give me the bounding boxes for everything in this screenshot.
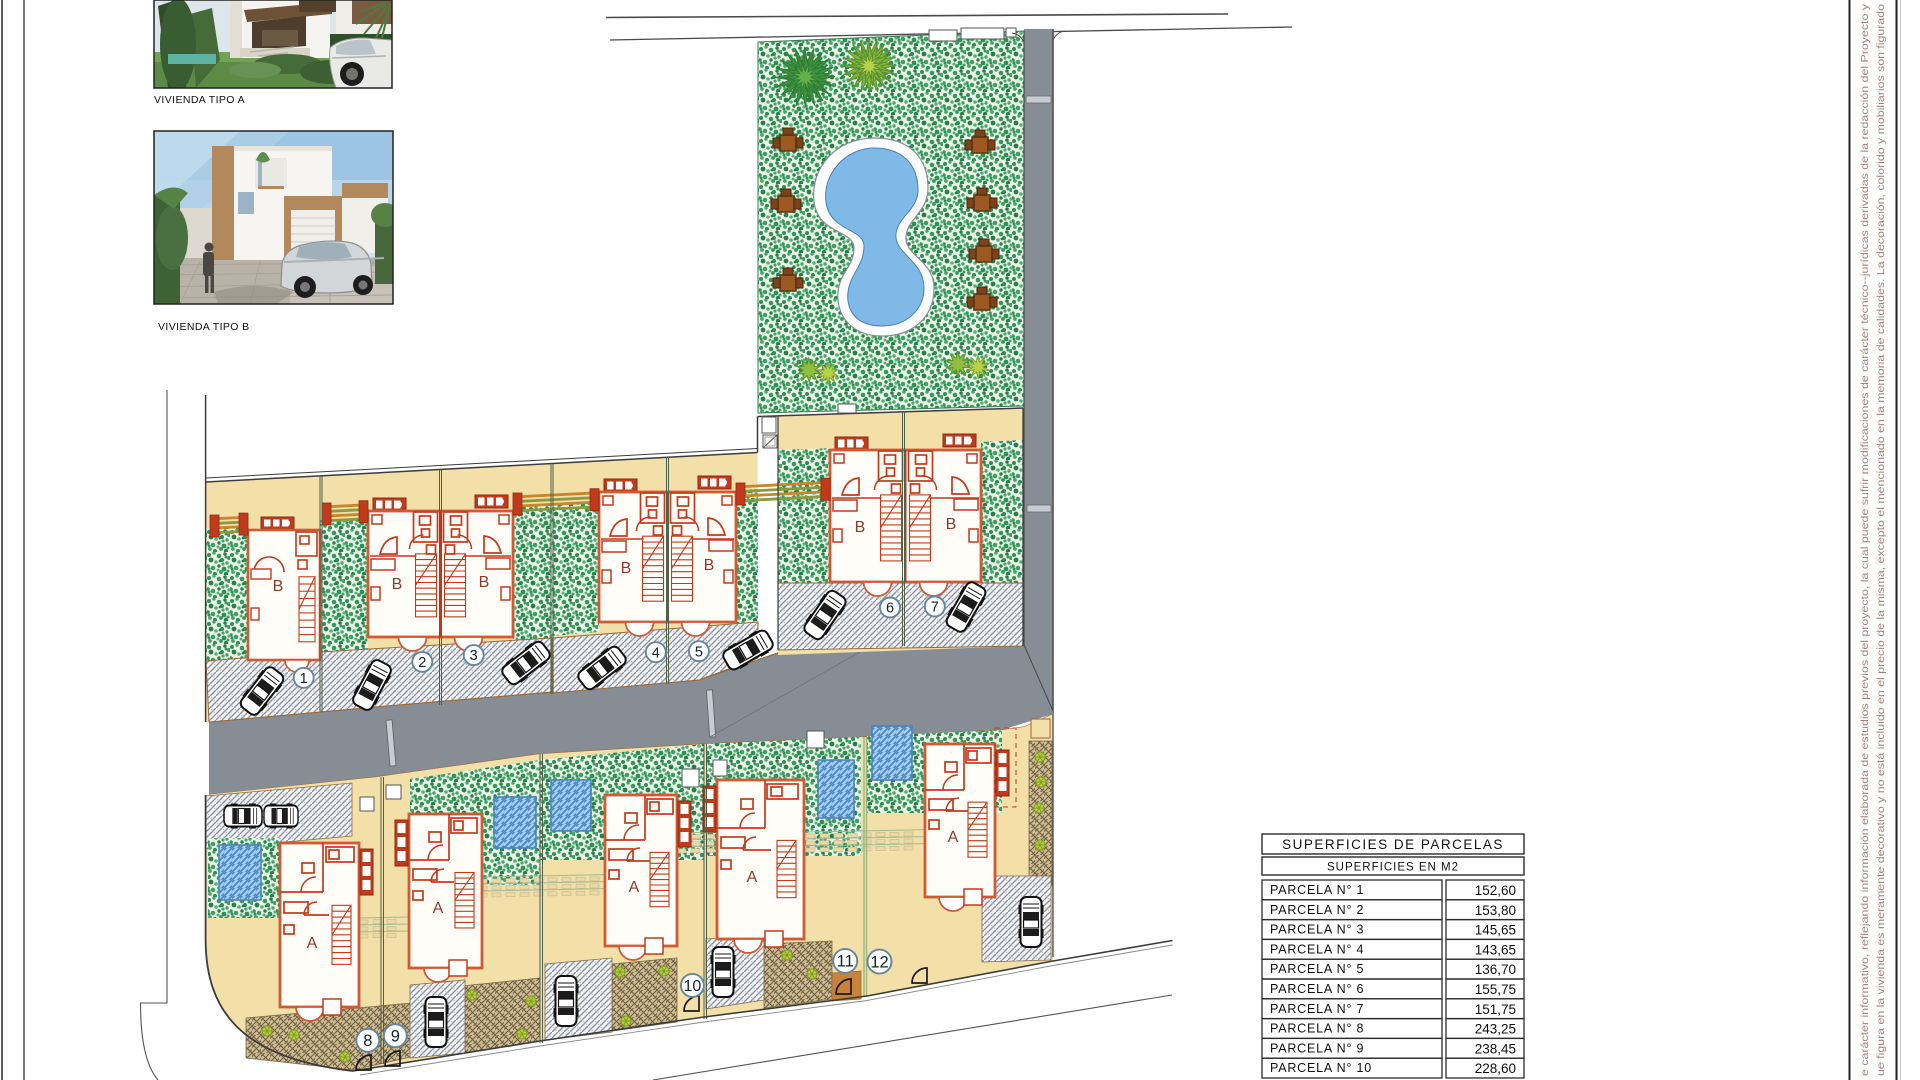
svg-text:B: B [273,578,284,595]
svg-text:11: 11 [837,953,854,971]
svg-text:PARCELA N° 10: PARCELA N° 10 [1270,1061,1372,1075]
svg-text:4: 4 [652,645,660,661]
svg-text:B: B [479,574,490,591]
svg-text:PARCELA N° 9: PARCELA N° 9 [1270,1041,1364,1055]
svg-text:SUPERFICIES EN M2: SUPERFICIES EN M2 [1327,862,1459,874]
svg-text:1: 1 [300,671,308,687]
svg-text:B: B [946,516,957,533]
svg-text:VIVIENDA TIPO A: VIVIENDA TIPO A [154,94,245,106]
svg-text:243,25: 243,25 [1475,1022,1516,1037]
svg-text:10: 10 [684,978,702,995]
svg-text:136,70: 136,70 [1475,962,1516,977]
svg-text:152,60: 152,60 [1475,883,1516,898]
svg-text:228,60: 228,60 [1475,1061,1516,1076]
svg-text:PARCELA N° 7: PARCELA N° 7 [1270,1002,1364,1016]
svg-text:B: B [392,576,403,593]
svg-text:PARCELA N° 3: PARCELA N° 3 [1270,923,1364,937]
svg-text:A: A [629,879,640,896]
svg-text:143,65: 143,65 [1475,942,1516,957]
svg-text:7: 7 [931,600,939,616]
svg-text:153,80: 153,80 [1475,903,1516,918]
svg-text:2: 2 [418,655,426,671]
svg-text:151,75: 151,75 [1475,1002,1516,1017]
svg-text:PARCELA N° 2: PARCELA N° 2 [1270,903,1364,917]
svg-text:PARCELA N° 1: PARCELA N° 1 [1270,883,1364,897]
svg-text:PARCELA N° 8: PARCELA N° 8 [1270,1022,1364,1036]
svg-text:e carácter informativo, reflej: e carácter informativo, reflejando infor… [1860,4,1871,1076]
svg-text:PARCELA N° 6: PARCELA N° 6 [1270,982,1364,996]
svg-text:9: 9 [391,1028,400,1046]
svg-text:PARCELA N° 4: PARCELA N° 4 [1270,942,1364,956]
svg-text:155,75: 155,75 [1475,982,1516,997]
svg-text:12: 12 [870,953,888,971]
svg-text:SUPERFICIES DE PARCELAS: SUPERFICIES DE PARCELAS [1282,837,1504,852]
svg-text:238,45: 238,45 [1475,1041,1516,1056]
svg-text:PARCELA N° 5: PARCELA N° 5 [1270,962,1364,976]
svg-text:6: 6 [886,601,894,617]
svg-text:B: B [704,557,715,574]
svg-text:B: B [621,560,632,577]
svg-text:A: A [307,935,318,952]
svg-text:5: 5 [695,644,703,660]
svg-text:A: A [948,829,959,846]
svg-text:A: A [433,900,444,917]
svg-text:ue figura en la vivienda es me: ue figura en la vivienda es meramente de… [1876,3,1887,1076]
svg-text:A: A [747,869,758,886]
svg-text:VIVIENDA TIPO B: VIVIENDA TIPO B [158,321,250,333]
svg-text:3: 3 [470,648,478,664]
svg-text:8: 8 [363,1032,372,1050]
svg-text:145,65: 145,65 [1475,923,1516,938]
svg-text:B: B [855,519,866,536]
